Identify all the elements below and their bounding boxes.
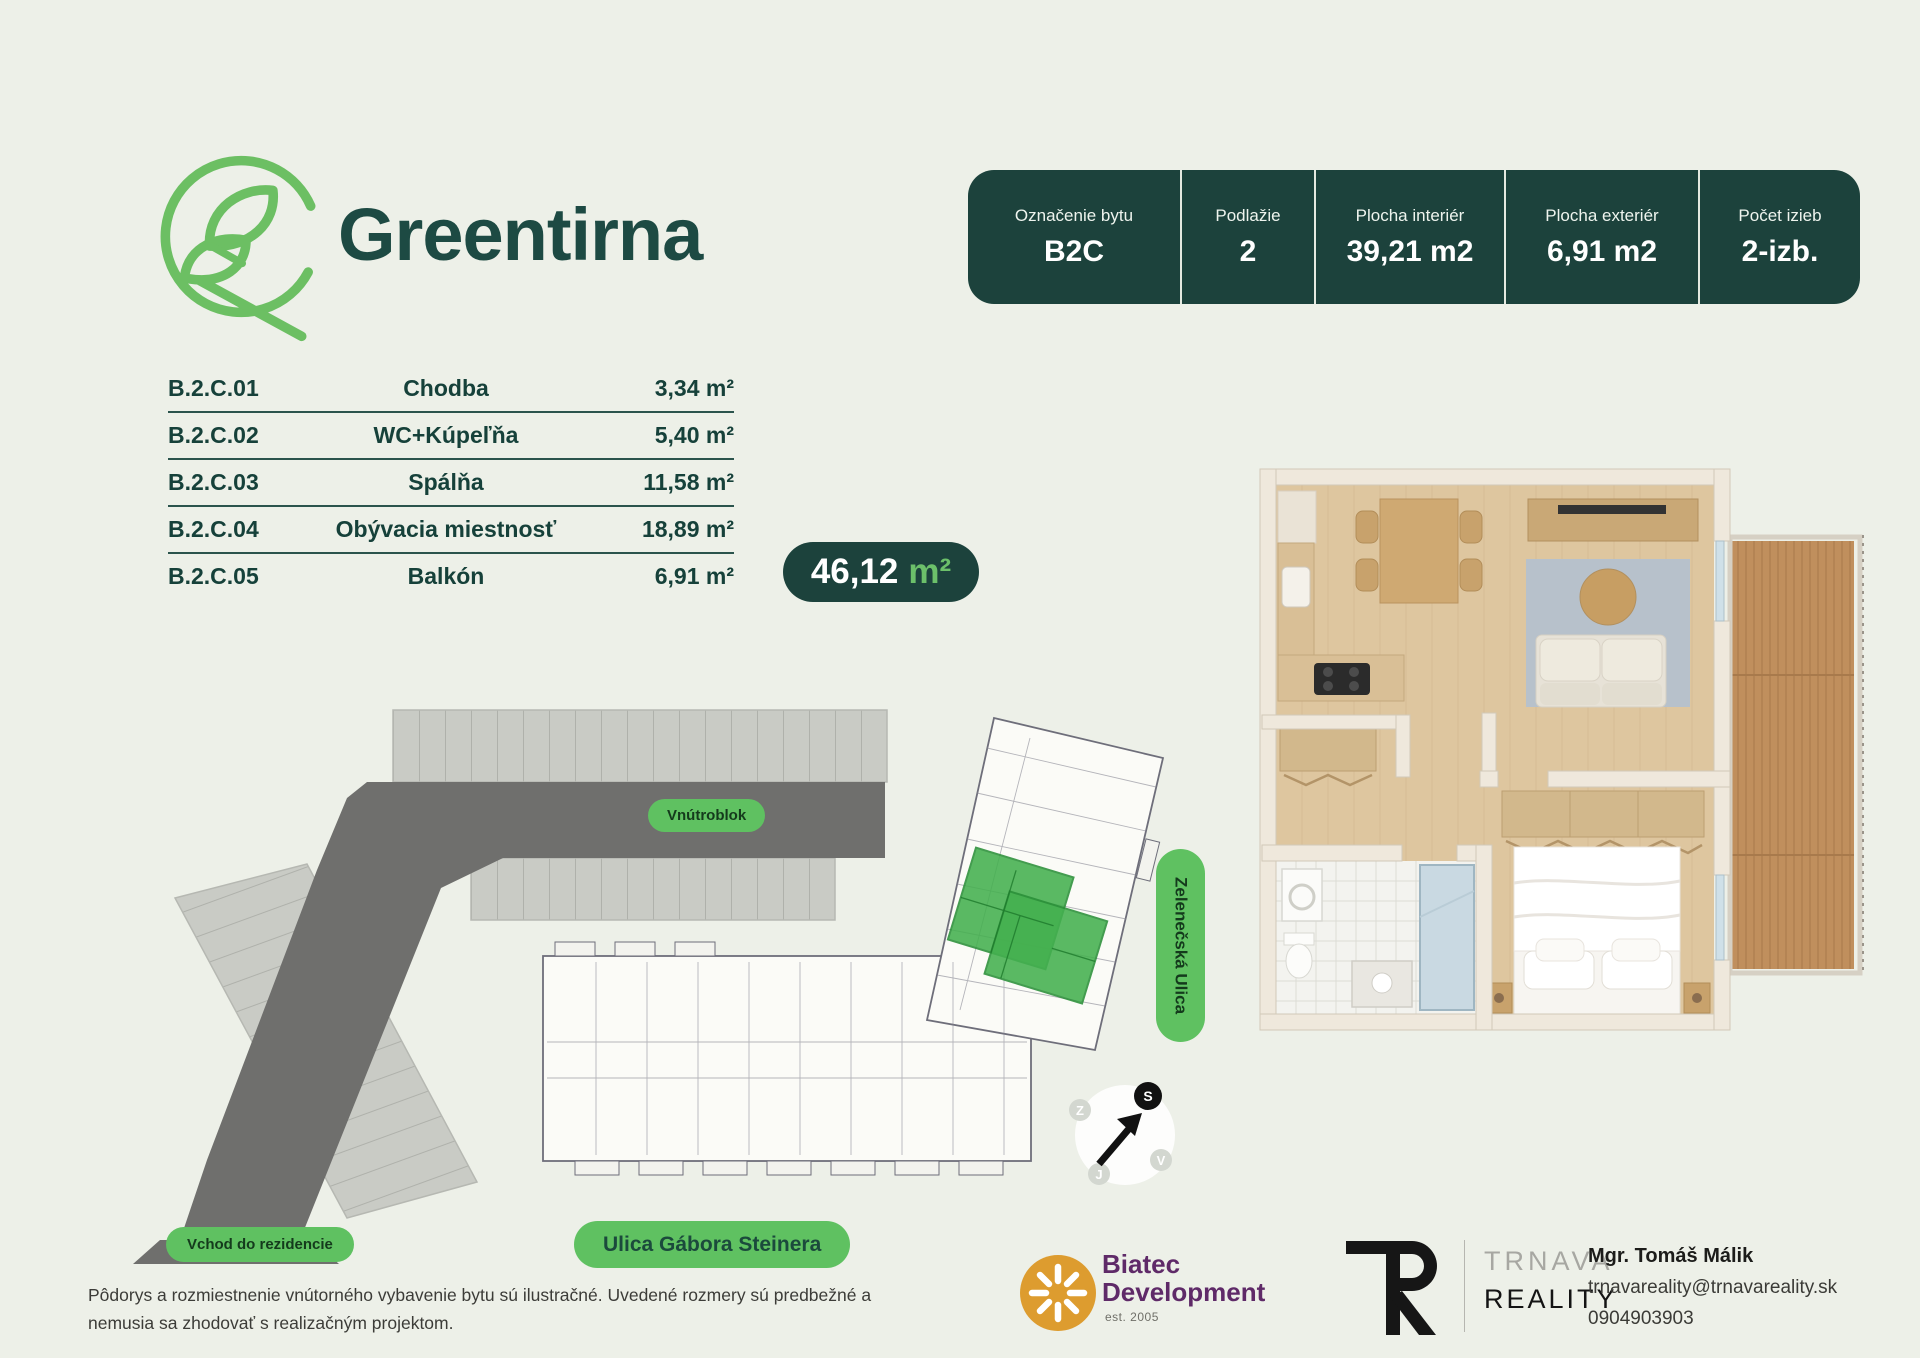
info-value: 39,21 m2	[1347, 235, 1474, 269]
site-plan: Z V J S	[55, 690, 1245, 1290]
site-label-vchod-do-rezidencie: Vchod do rezidencie	[166, 1227, 354, 1262]
agent-email: trnavareality@trnavareality.sk	[1588, 1272, 1837, 1303]
table-row: B.2.C.04 Obývacia miestnosť 18,89 m²	[168, 507, 734, 554]
disclaimer-text: Pôdorys a rozmiestnenie vnútorného vybav…	[88, 1281, 880, 1337]
toilet-tank	[1284, 933, 1314, 945]
total-area-value: 46,12	[811, 552, 899, 592]
info-value: 2	[1240, 235, 1257, 269]
agent-name: Mgr. Tomáš Málik	[1588, 1241, 1837, 1272]
living-room	[1526, 499, 1698, 707]
dining-table	[1380, 499, 1458, 603]
fridge	[1278, 491, 1316, 543]
room-name: Chodba	[288, 375, 604, 402]
apartment-3d-floorplan	[1252, 455, 1872, 1040]
room-code: B.2.C.03	[168, 469, 288, 496]
room-name: Obývacia miestnosť	[288, 516, 604, 543]
table-row: B.2.C.01 Chodba 3,34 m²	[168, 366, 734, 413]
info-label: Označenie bytu	[1015, 206, 1133, 226]
room-code: B.2.C.05	[168, 563, 288, 590]
biatec-line1: Biatec	[1102, 1250, 1265, 1278]
room-area: 6,91 m²	[604, 563, 734, 590]
agent-phone: 0904903903	[1588, 1303, 1837, 1334]
info-cell-interior-area: Plocha interiér 39,21 m2	[1314, 170, 1504, 304]
room-area: 3,34 m²	[604, 375, 734, 402]
compass-east: V	[1157, 1153, 1166, 1168]
cooktop	[1314, 663, 1370, 695]
compass-west: Z	[1076, 1103, 1084, 1118]
room-name: Spálňa	[288, 469, 604, 496]
total-area-unit: m²	[908, 552, 951, 592]
room-code: B.2.C.01	[168, 375, 288, 402]
balcony	[1730, 535, 1863, 975]
brand-title: Greentirna	[338, 192, 702, 277]
info-cell-exterior-area: Plocha exteriér 6,91 m2	[1504, 170, 1698, 304]
biatec-est-label: est. 2005	[1105, 1310, 1159, 1324]
bathroom	[1276, 861, 1476, 1014]
room-name: Balkón	[288, 563, 604, 590]
info-label: Plocha exteriér	[1545, 206, 1658, 226]
compass-icon: Z V J S	[1069, 1082, 1175, 1185]
info-cell-room-count: Počet izieb 2-izb.	[1698, 170, 1860, 304]
compass-south: J	[1095, 1167, 1102, 1182]
washing-machine	[1282, 869, 1322, 921]
table-row: B.2.C.05 Balkón 6,91 m²	[168, 554, 734, 599]
info-cell-floor: Podlažie 2	[1180, 170, 1314, 304]
logo-divider	[1464, 1240, 1465, 1332]
shower	[1420, 865, 1474, 1010]
info-label: Počet izieb	[1738, 206, 1821, 226]
room-area: 18,89 m²	[604, 516, 734, 543]
toilet	[1286, 944, 1312, 978]
biatec-development-logo-icon	[1018, 1253, 1098, 1333]
unit-info-table: Označenie bytu B2C Podlažie 2 Plocha int…	[968, 170, 1860, 304]
total-area-badge: 46,12 m²	[783, 542, 979, 602]
trnava-reality-logo-icon	[1344, 1237, 1448, 1335]
room-area: 5,40 m²	[604, 422, 734, 449]
room-code: B.2.C.02	[168, 422, 288, 449]
tv	[1558, 505, 1666, 514]
biatec-development-name: Biatec Development	[1102, 1250, 1265, 1306]
site-label-zelenecska-ulica: Zelenečská Ulica	[1156, 849, 1205, 1042]
site-label-ulica-gabora-steinera: Ulica Gábora Steinera	[574, 1221, 850, 1268]
table-row: B.2.C.03 Spálňa 11,58 m²	[168, 460, 734, 507]
room-name: WC+Kúpeľňa	[288, 422, 604, 449]
sofa	[1536, 635, 1666, 707]
sink	[1282, 567, 1310, 607]
info-cell-designation: Označenie bytu B2C	[968, 170, 1180, 304]
room-list-table: B.2.C.01 Chodba 3,34 m² B.2.C.02 WC+Kúpe…	[168, 366, 734, 599]
room-area: 11,58 m²	[604, 469, 734, 496]
info-value: 6,91 m2	[1547, 235, 1657, 269]
flyer-page: Greentirna Označenie bytu B2C Podlažie 2…	[0, 0, 1920, 1358]
biatec-line2: Development	[1102, 1278, 1265, 1306]
site-label-vnutroblok: Vnútroblok	[648, 799, 765, 832]
compass-north: S	[1143, 1088, 1152, 1104]
info-value: B2C	[1044, 235, 1104, 269]
bedroom	[1486, 847, 1710, 1015]
greentirna-leaf-logo-icon	[150, 148, 342, 348]
info-value: 2-izb.	[1742, 235, 1819, 269]
room-code: B.2.C.04	[168, 516, 288, 543]
agent-contact: Mgr. Tomáš Málik trnavareality@trnavarea…	[1588, 1241, 1837, 1334]
coffee-table	[1580, 569, 1636, 625]
table-row: B.2.C.02 WC+Kúpeľňa 5,40 m²	[168, 413, 734, 460]
info-label: Podlažie	[1215, 206, 1280, 226]
info-label: Plocha interiér	[1356, 206, 1465, 226]
